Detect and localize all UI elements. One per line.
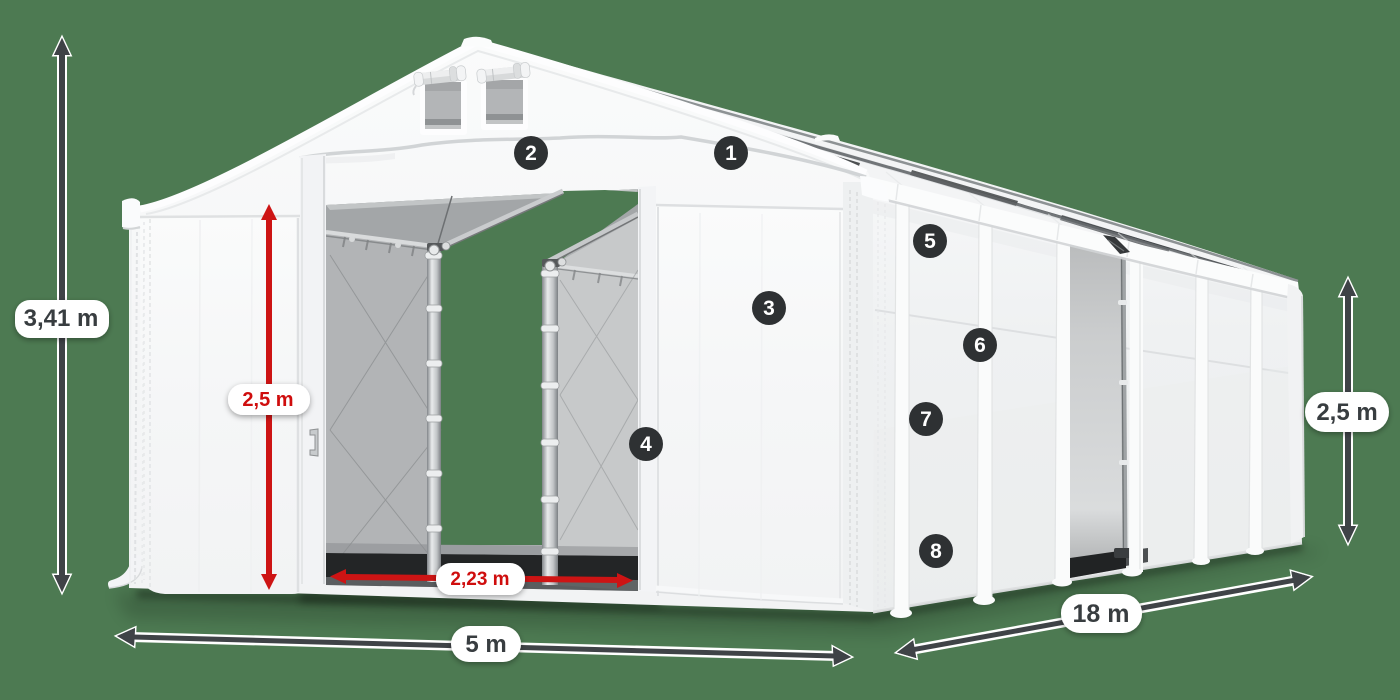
svg-text:3,41 m: 3,41 m	[24, 305, 99, 332]
svg-text:6: 6	[974, 334, 986, 357]
svg-text:2,23 m: 2,23 m	[450, 569, 509, 590]
svg-text:2,5 m: 2,5 m	[242, 389, 293, 411]
svg-text:2: 2	[525, 142, 537, 165]
svg-text:3: 3	[763, 297, 775, 320]
svg-text:5: 5	[924, 230, 936, 253]
svg-text:4: 4	[640, 433, 652, 456]
svg-text:5 m: 5 m	[465, 631, 506, 658]
svg-text:8: 8	[930, 540, 942, 563]
svg-text:2,5 m: 2,5 m	[1316, 399, 1377, 426]
svg-text:1: 1	[725, 142, 737, 165]
svg-text:7: 7	[920, 408, 932, 431]
svg-text:18 m: 18 m	[1073, 600, 1130, 628]
